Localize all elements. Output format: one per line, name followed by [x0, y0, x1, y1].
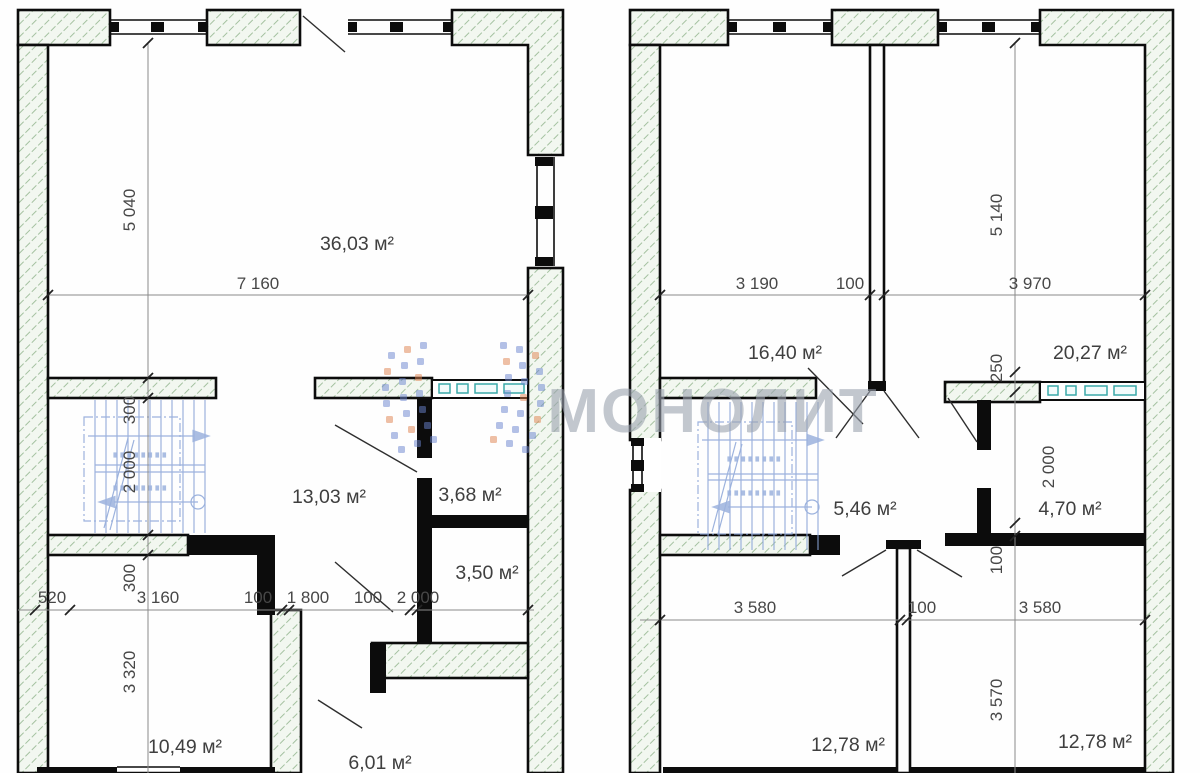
window-icon: [631, 438, 661, 492]
dimension-label: 1 800: [287, 588, 330, 607]
dimension-label: 5 040: [120, 189, 139, 232]
dimension-label: 7 160: [237, 274, 280, 293]
watermark-text: МОНОЛИТ: [547, 377, 878, 446]
dimension-label: 250: [987, 354, 1006, 382]
floor-plan-left: 7 160 5 040 300 2 000 300 3 320 520 3 16…: [18, 10, 563, 773]
dimension-label: 3 320: [120, 651, 139, 694]
floorplan-canvas: 7 160 5 040 300 2 000 300 3 320 520 3 16…: [0, 0, 1200, 773]
dimension-label: 300: [120, 396, 139, 424]
room-area-label: 20,27 м²: [1053, 342, 1128, 364]
plumbing-fixtures-icon: [1040, 382, 1145, 400]
room-area-label: 13,03 м²: [292, 486, 367, 508]
door-swing-icon: [303, 16, 417, 728]
floorplan-drawing: 7 160 5 040 300 2 000 300 3 320 520 3 16…: [0, 0, 1200, 773]
dimension-label: 100: [836, 274, 864, 293]
window-icon: [535, 157, 554, 266]
dimension-label: 100: [244, 588, 272, 607]
plumbing-fixtures-icon: [432, 380, 528, 398]
room-area-label: 5,46 м²: [833, 498, 897, 520]
dimension-label: 520: [38, 588, 66, 607]
room-area-label: 4,70 м²: [1038, 498, 1102, 520]
dimension-label: 100: [908, 598, 936, 617]
window-icon: [348, 20, 452, 34]
room-area-label: 6,01 м²: [348, 752, 412, 773]
room-area-label: 12,78 м²: [1058, 731, 1133, 753]
room-area-label: 16,40 м²: [748, 342, 823, 364]
dimension-label: 3 580: [1019, 598, 1062, 617]
dimension-label: 3 190: [736, 274, 779, 293]
dimension-label: 100: [987, 546, 1006, 574]
room-area-label: 12,78 м²: [811, 734, 886, 756]
dimension-label: 3 970: [1009, 274, 1052, 293]
window-icon: [110, 20, 207, 34]
dimension-label: 2 000: [120, 451, 139, 494]
room-area-label: 3,50 м²: [455, 562, 519, 584]
dimension-label: 100: [354, 588, 382, 607]
dimension-label: 2 000: [1039, 446, 1058, 489]
dimension-label: 5 140: [987, 194, 1006, 237]
dimension-label: 3 570: [987, 679, 1006, 722]
staircase-icon: [84, 400, 209, 533]
room-area-label: 3,68 м²: [438, 484, 502, 506]
dimension-label: 3 160: [137, 588, 180, 607]
window-icon: [938, 20, 1040, 34]
room-area-label: 10,49 м²: [148, 736, 223, 758]
dimension-label: 2 000: [397, 588, 440, 607]
window-icon: [728, 20, 832, 34]
dimension-label: 3 580: [734, 598, 777, 617]
room-area-label: 36,03 м²: [320, 233, 395, 255]
